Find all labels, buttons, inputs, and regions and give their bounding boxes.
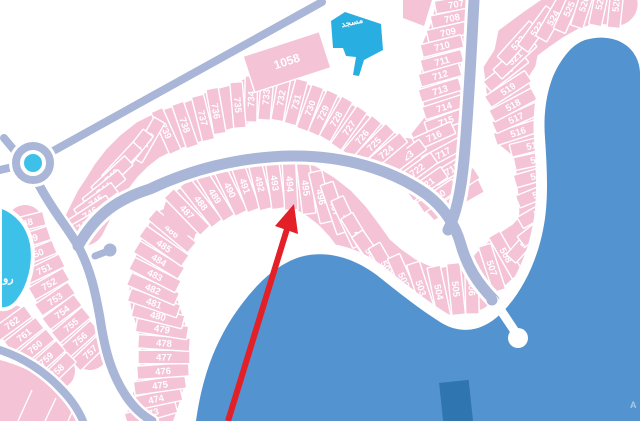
plot-number: 493 <box>268 175 281 192</box>
plot-number: 735 <box>231 97 243 114</box>
lake-label: رو <box>2 273 14 285</box>
plot-number: 505 <box>449 281 462 299</box>
plot-number: 475 <box>152 379 170 392</box>
plot-number: 476 <box>155 366 172 378</box>
map-canvas: 4734744754764774784794804814824834844854… <box>0 0 640 421</box>
plot-number: 478 <box>156 338 173 350</box>
plot-number: 528 <box>611 0 624 13</box>
plot-number: 477 <box>156 352 172 363</box>
plot-cell-476[interactable]: 476 <box>137 362 190 379</box>
map-page: 4734744754764774784794804814824834844854… <box>0 0 640 421</box>
mosque: مسجد <box>331 12 383 76</box>
plot-cell-494[interactable]: 494 <box>282 158 298 211</box>
plot-cell-477[interactable]: 477 <box>138 350 190 364</box>
plot-number: 495 <box>299 180 312 198</box>
unlabeled-plot <box>403 0 432 26</box>
plot-number: 733 <box>261 89 273 106</box>
roundabout-pond <box>23 153 44 174</box>
pier-road-bulb <box>487 295 498 306</box>
corner-letter: A <box>630 400 637 410</box>
plot-number: 494 <box>283 176 295 193</box>
culdesac-bulb <box>104 244 117 257</box>
roundabout <box>16 146 50 180</box>
